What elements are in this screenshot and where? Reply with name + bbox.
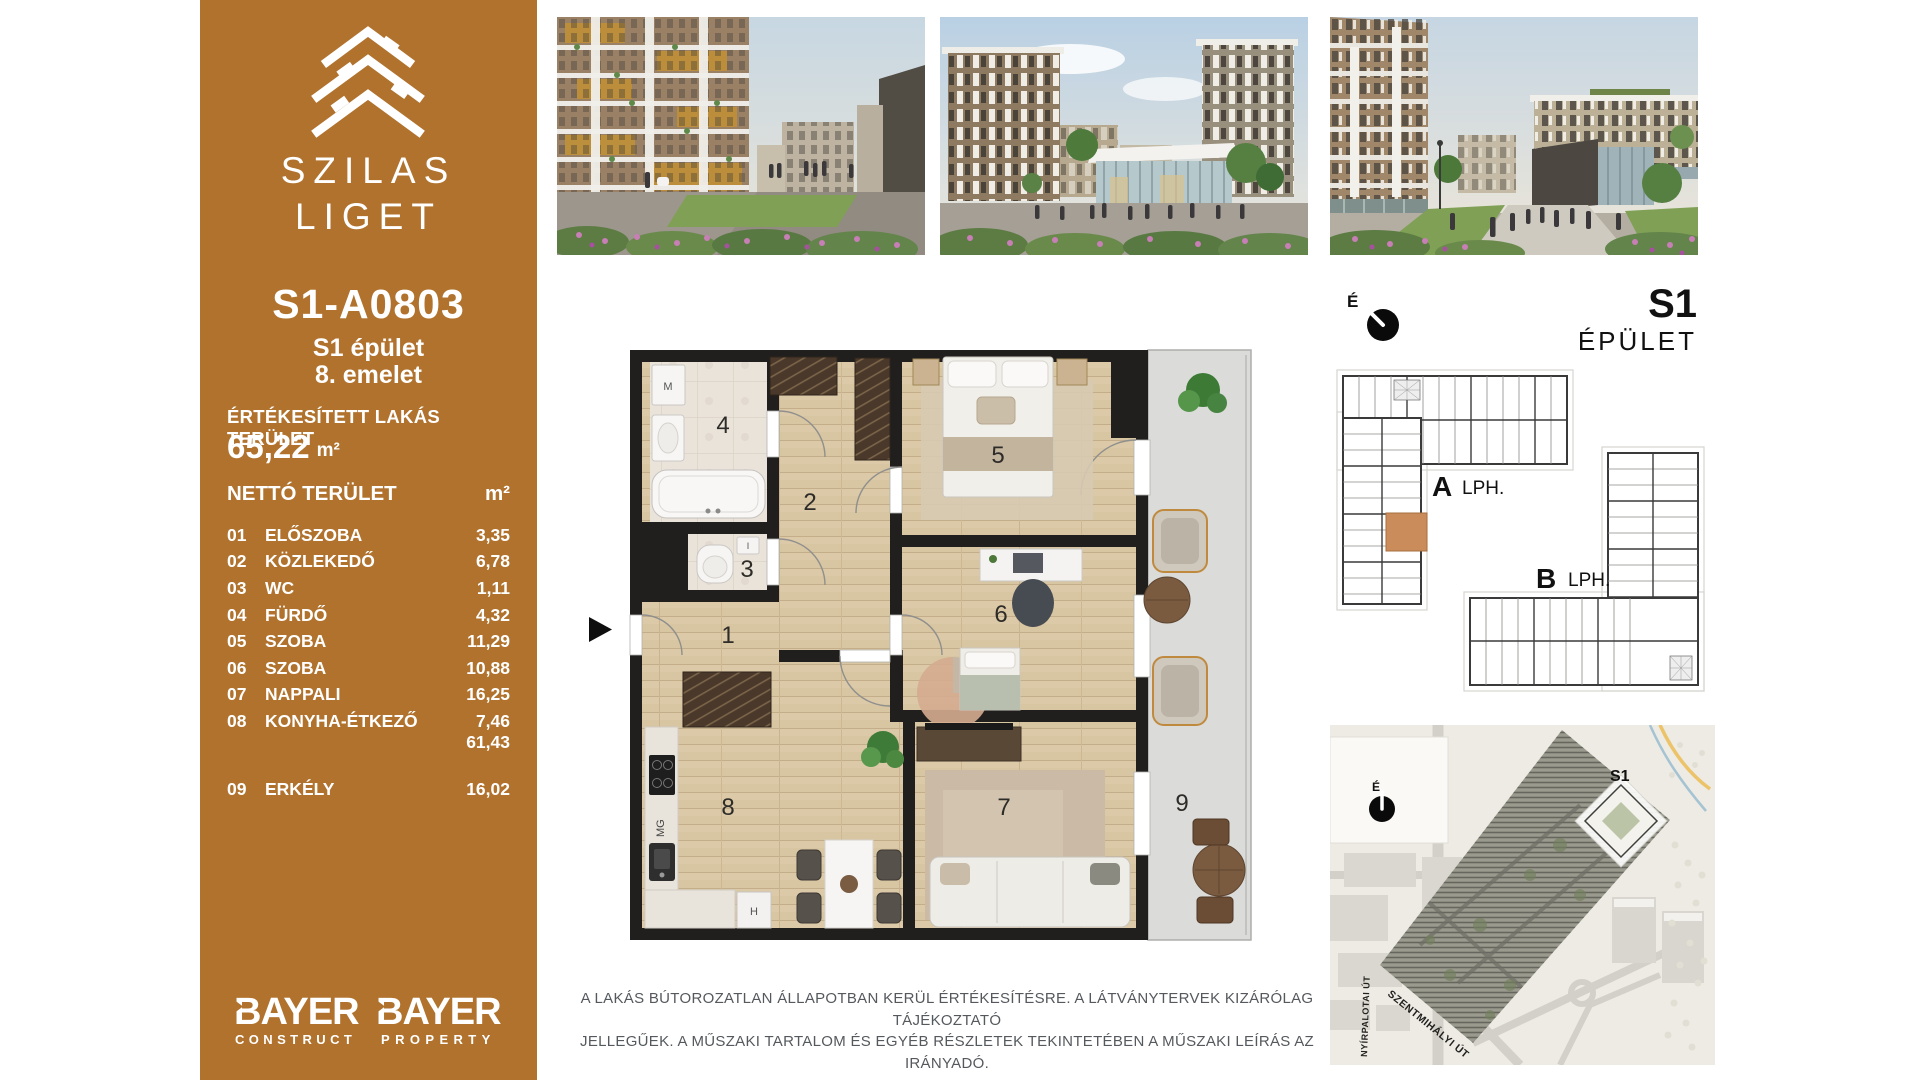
- room-number-9: 9: [1175, 790, 1188, 817]
- szilas-liget-logo-icon: [300, 16, 436, 142]
- room-no: 05: [227, 631, 265, 652]
- room-no: 01: [227, 525, 265, 546]
- unit-floor: 8. emelet: [200, 361, 537, 390]
- table-row: 07NAPPALI16,25: [227, 682, 510, 709]
- room-number-1: 1: [721, 622, 734, 649]
- room-name: NAPPALI: [265, 684, 466, 705]
- sidebar: SZILAS LIGET S1-A0803 S1 épület 8. emele…: [200, 0, 537, 1080]
- wing-a-sub: LPH.: [1462, 478, 1504, 499]
- room-number-3: 3: [740, 556, 753, 583]
- room-no: 02: [227, 551, 265, 572]
- fridge-label: H: [750, 906, 758, 918]
- room-name: SZOBA: [265, 631, 467, 652]
- room-no: 06: [227, 658, 265, 679]
- room-area: 10,88: [466, 658, 510, 679]
- north-label: É: [1347, 292, 1358, 312]
- sold-area-number: 65,22: [227, 428, 310, 465]
- table-row: 04FÜRDŐ4,32: [227, 602, 510, 629]
- wing-b-sub: LPH.: [1568, 570, 1610, 591]
- dishwasher-label: MG: [655, 819, 667, 837]
- bayer-construct-label: CONSTRUCT: [235, 1032, 356, 1047]
- net-total-row: 61,43: [227, 729, 510, 756]
- room-number-2: 2: [803, 489, 816, 516]
- sold-area-value: 65,22m²: [227, 428, 510, 466]
- render-photo-promenade: [1330, 17, 1698, 255]
- room-number-7: 7: [997, 794, 1010, 821]
- bayer-wordmark: BAYER: [376, 991, 501, 1033]
- wing-a: [1343, 376, 1567, 604]
- entrance-arrow-icon: [589, 617, 612, 642]
- unit-code: S1-A0803: [200, 281, 537, 328]
- room-name: ELŐSZOBA: [265, 525, 476, 546]
- room-no: 03: [227, 578, 265, 599]
- unit-building: S1 épület: [200, 334, 537, 363]
- table-row: 02KÖZLEKEDŐ6,78: [227, 549, 510, 576]
- wing-b-label: B: [1536, 563, 1556, 594]
- room-number-6: 6: [994, 601, 1007, 628]
- bedroom1-furniture: [913, 357, 1093, 520]
- room-name: ERKÉLY: [265, 779, 466, 800]
- north-compass-icon: [1364, 306, 1400, 342]
- room-area: 4,32: [476, 605, 510, 626]
- building-label: ÉPÜLET: [1497, 326, 1697, 357]
- map-north-label: É: [1372, 779, 1380, 794]
- brand-line2: LIGET: [200, 196, 537, 238]
- table-row: 03WC1,11: [227, 575, 510, 602]
- cistern-label: I: [747, 541, 750, 551]
- room-name: WC: [265, 578, 477, 599]
- room-area: 16,02: [466, 779, 510, 800]
- table-row: 05SZOBA11,29: [227, 628, 510, 655]
- room-name: FÜRDŐ: [265, 605, 476, 626]
- disclaimer-line2: JELLEGŰEK. A MŰSZAKI TARTALOM ÉS EGYÉB R…: [547, 1031, 1347, 1074]
- net-area-header: NETTÓ TERÜLET m²: [227, 482, 510, 506]
- room-area: 1,11: [477, 578, 510, 599]
- table-row: 06SZOBA10,88: [227, 655, 510, 682]
- highlighted-unit: [1386, 513, 1427, 551]
- table-row: 01ELŐSZOBA3,35: [227, 522, 510, 549]
- render-photo-plaza: [940, 17, 1308, 255]
- room-no: 09: [227, 779, 265, 800]
- room-table: 01ELŐSZOBA3,35 02KÖZLEKEDŐ6,78 03WC1,11 …: [227, 522, 510, 735]
- room-number-5: 5: [991, 442, 1004, 469]
- bayer-wordmark: BAYER: [234, 991, 359, 1033]
- room-area: 3,35: [476, 525, 510, 546]
- building-code: S1: [1497, 284, 1697, 324]
- bayer-construct-logo: BAYER CONSTRUCT: [234, 991, 362, 1049]
- bayer-property-label: PROPERTY: [381, 1032, 496, 1047]
- net-total-value: 61,43: [466, 732, 510, 753]
- room-name: SZOBA: [265, 658, 466, 679]
- bayer-property-logo: BAYER PROPERTY: [376, 991, 504, 1049]
- building-level-schematic: A LPH.: [1330, 368, 1710, 700]
- room-no: 04: [227, 605, 265, 626]
- render-photo-courtyard: [557, 17, 925, 255]
- sold-area-unit: m²: [317, 440, 340, 461]
- wing-a-label: A: [1432, 471, 1452, 502]
- net-area-label: NETTÓ TERÜLET: [227, 482, 397, 506]
- room-area: 6,78: [476, 551, 510, 572]
- site-map: S1 É NYÍRPALOTAI ÚT SZENTMIHÁLYI ÚT: [1330, 725, 1715, 1065]
- room-name: KÖZLEKEDŐ: [265, 551, 476, 572]
- room-no: 07: [227, 684, 265, 705]
- disclaimer-line1: A LAKÁS BÚTOROZATLAN ÁLLAPOTBAN KERÜL ÉR…: [547, 988, 1347, 1031]
- room-number-4: 4: [716, 412, 729, 439]
- room-number-8: 8: [721, 794, 734, 821]
- developer-logos: BAYER CONSTRUCT BAYER PROPERTY: [200, 991, 537, 1049]
- washer-label: M: [663, 381, 672, 393]
- s1-map-tag: S1: [1610, 768, 1630, 785]
- disclaimer: A LAKÁS BÚTOROZATLAN ÁLLAPOTBAN KERÜL ÉR…: [547, 988, 1347, 1074]
- datasheet-page: SZILAS LIGET S1-A0803 S1 épület 8. emele…: [0, 0, 1920, 1080]
- brand-line1: SZILAS: [200, 150, 537, 192]
- net-area-unit: m²: [485, 482, 510, 506]
- room-area: 11,29: [467, 631, 510, 652]
- room-area: 16,25: [466, 684, 510, 705]
- balcony-row: 09ERKÉLY16,02: [227, 776, 510, 803]
- floor-plan: M I: [585, 345, 1275, 945]
